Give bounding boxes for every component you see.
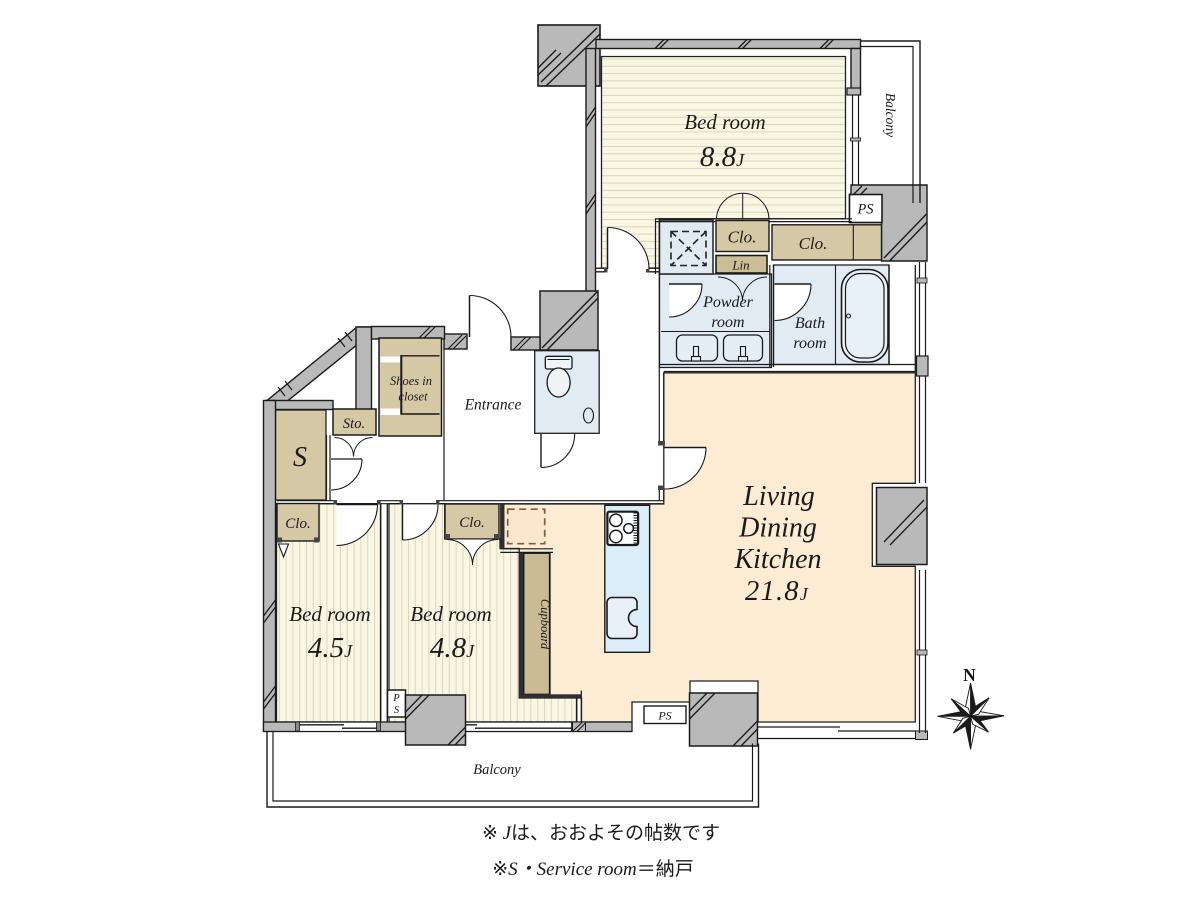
svg-text:Cupboard: Cupboard	[538, 599, 552, 650]
svg-text:Entrance: Entrance	[464, 397, 522, 414]
svg-text:Lin: Lin	[731, 258, 749, 273]
svg-text:P: P	[392, 693, 400, 704]
svg-text:Clo.: Clo.	[459, 515, 484, 531]
svg-text:Kitchen: Kitchen	[733, 544, 821, 575]
svg-text:PS: PS	[657, 709, 671, 723]
svg-text:Clo.: Clo.	[285, 516, 310, 532]
svg-text:Powder: Powder	[702, 294, 754, 311]
svg-text:N: N	[963, 665, 976, 685]
svg-text:Bed room: Bed room	[684, 110, 765, 134]
svg-text:S: S	[293, 442, 307, 473]
svg-text:Bed room: Bed room	[410, 602, 491, 626]
svg-text:S: S	[394, 705, 400, 716]
svg-text:room: room	[793, 335, 826, 352]
svg-text:Bed room: Bed room	[289, 602, 370, 626]
svg-text:※S・Service room＝納戸: ※S・Service room＝納戸	[492, 858, 694, 880]
svg-text:room: room	[711, 314, 744, 331]
svg-text:※ Jは、おおよその帖数です: ※ Jは、おおよその帖数です	[482, 822, 720, 844]
svg-text:Bath: Bath	[795, 315, 825, 332]
svg-text:21.8J: 21.8J	[745, 576, 809, 607]
svg-text:Dining: Dining	[738, 513, 817, 544]
svg-text:PS: PS	[856, 202, 874, 218]
svg-text:closet: closet	[398, 390, 428, 404]
svg-text:Clo.: Clo.	[728, 228, 757, 247]
svg-text:Sto.: Sto.	[343, 416, 365, 432]
svg-text:Living: Living	[742, 481, 815, 512]
svg-text:Balcony: Balcony	[883, 93, 898, 137]
svg-text:Shoes in: Shoes in	[390, 374, 432, 388]
svg-text:Balcony: Balcony	[473, 762, 521, 778]
svg-text:Clo.: Clo.	[799, 234, 828, 253]
